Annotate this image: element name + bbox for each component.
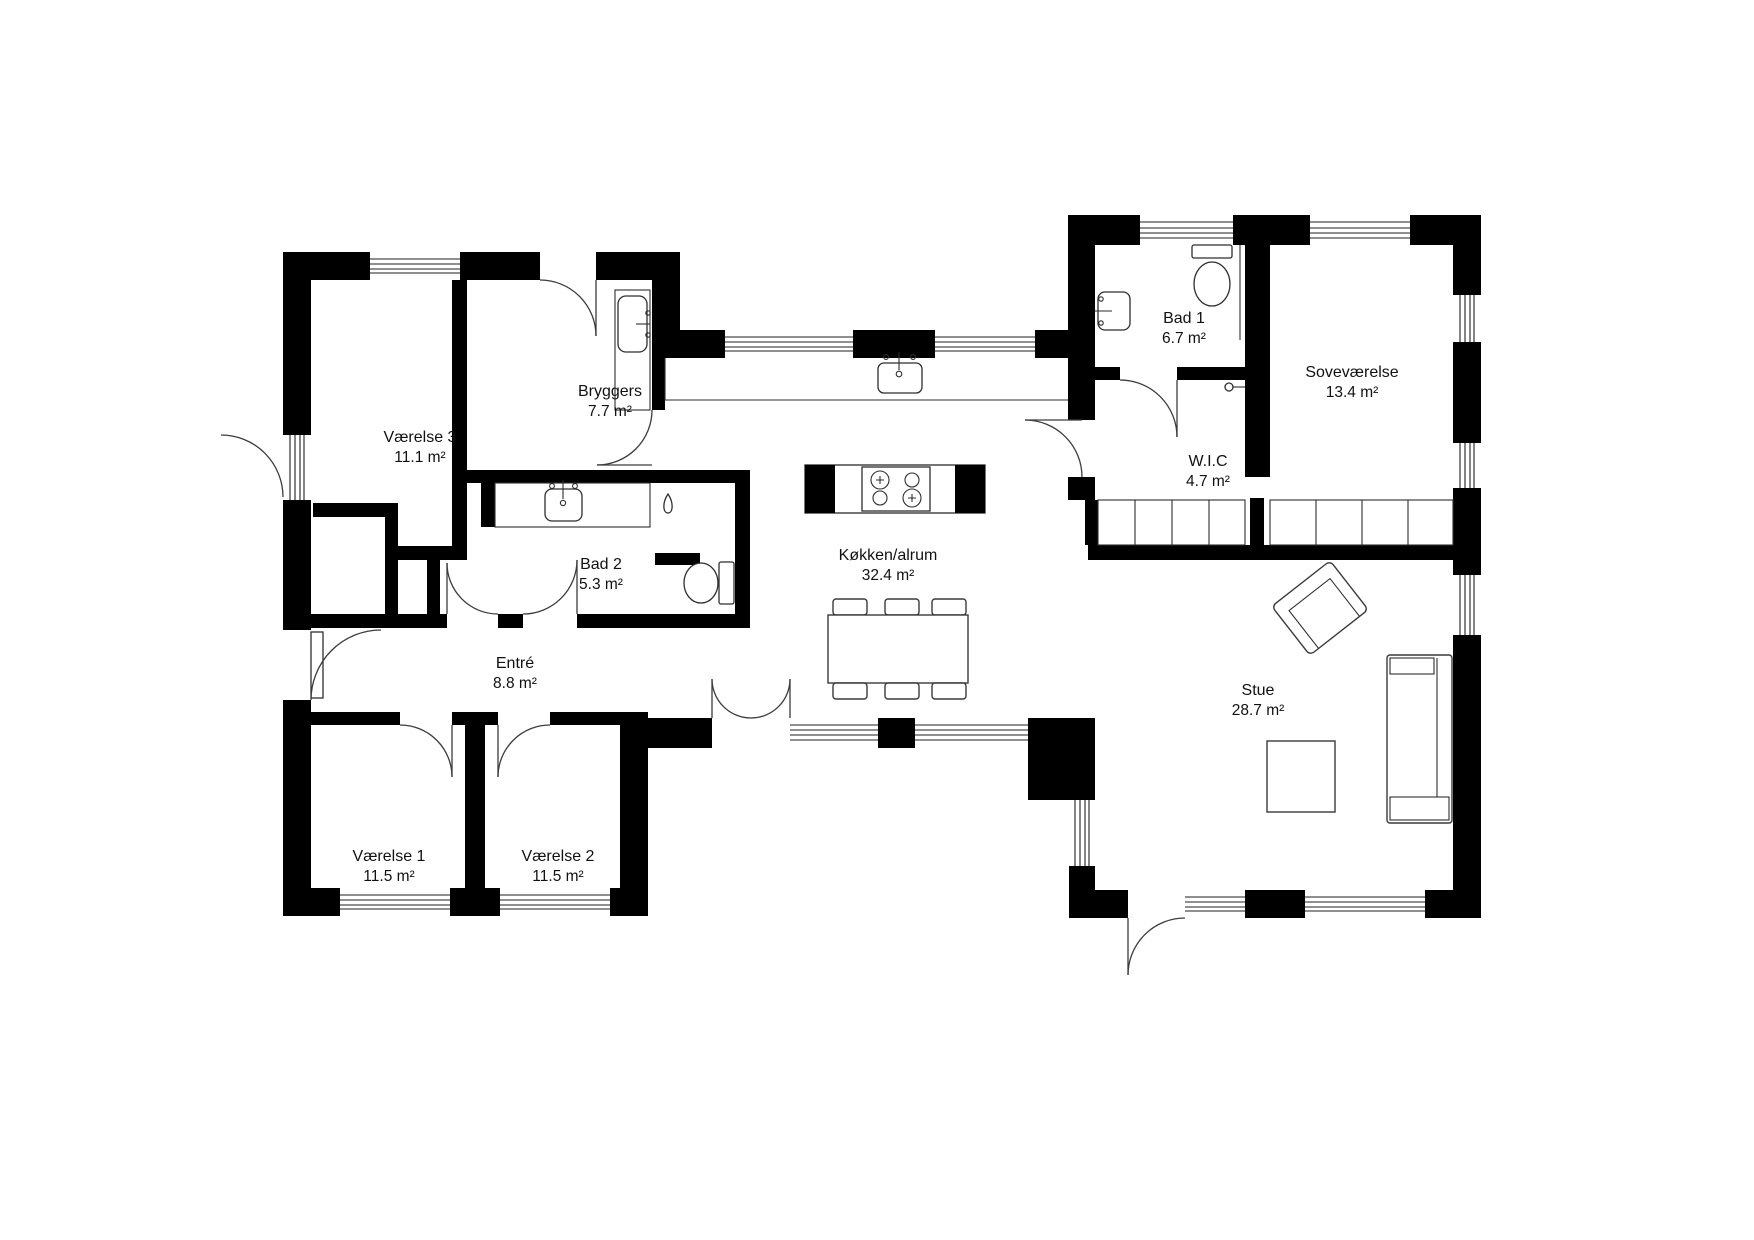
svg-text:Stue: Stue [1242,682,1275,699]
bad1-sink-icon [1095,292,1130,330]
window-vaerelse3-top [370,259,460,273]
kitchen-sink-icon [878,352,922,393]
floor-plan-page: Værelse 3 11.1 m² Bryggers 7.7 m² Bad 2 … [0,0,1754,1240]
window-sove-top-2 [1310,222,1410,238]
room-label-bad2: Bad 2 5.3 m² [579,556,623,593]
window-kitchen-bottom-2 [915,725,1028,740]
svg-text:32.4 m²: 32.4 m² [862,567,915,584]
room-label-vaerelse2: Værelse 2 11.5 m² [522,848,595,885]
svg-text:Bad 1: Bad 1 [1163,310,1205,327]
door-vaerelse3 [447,563,498,614]
dining-chair [885,683,919,699]
door-front-entrance [311,630,381,700]
window-vaerelse2-bottom [500,895,610,909]
room-label-stue: Stue 28.7 m² [1232,682,1285,719]
room-label-bryggers: Bryggers 7.7 m² [578,383,642,420]
window-stue-left-low [1075,800,1089,866]
svg-text:Værelse 2: Værelse 2 [522,848,595,865]
door-vaerelse1 [400,725,452,777]
svg-text:Soveværelse: Soveværelse [1305,364,1398,381]
window-stue-bottom-2 [1305,897,1425,911]
svg-text:4.7 m²: 4.7 m² [1186,473,1230,490]
svg-text:13.4 m²: 13.4 m² [1326,384,1379,401]
window-casement-arc [221,435,283,497]
dining-table [828,615,968,683]
svg-text:28.7 m²: 28.7 m² [1232,702,1285,719]
door-stue-terrace [1128,918,1185,975]
window-sove-right-2 [1460,443,1474,488]
room-label-wic: W.I.C 4.7 m² [1186,453,1230,490]
svg-text:11.1 m²: 11.1 m² [394,449,445,466]
svg-text:Værelse 1: Værelse 1 [353,848,426,865]
svg-text:Bryggers: Bryggers [578,383,642,400]
window-sove-top-1 [1140,222,1233,238]
svg-text:Værelse 3: Værelse 3 [384,429,457,446]
dining-chair [932,599,966,615]
dining-chair [833,599,867,615]
window-kitchen-bottom-1 [790,725,878,740]
svg-text:Entré: Entré [496,655,534,672]
door-vaerelse2 [498,725,550,777]
room-label-sovevaerelse: Soveværelse 13.4 m² [1305,364,1398,401]
bad1-toilet-icon [1192,245,1232,306]
svg-text:Køkken/alrum: Køkken/alrum [839,547,938,564]
wic-wardrobe [1098,500,1245,545]
svg-text:11.5 m²: 11.5 m² [532,868,583,885]
window-vaerelse1-bottom [340,895,450,909]
window-kitchen-top-1 [725,337,853,351]
window-kitchen-top-2 [935,337,1035,351]
kitchen-counter [665,358,1068,400]
coffee-table [1267,741,1335,812]
window-stue-bottom-1 [1185,897,1245,911]
dining-chair [833,683,867,699]
sove-wardrobe [1270,500,1453,545]
washing-machine-icon [618,296,650,352]
svg-text:8.8 m²: 8.8 m² [493,675,537,692]
window-stue-right [1460,575,1474,635]
stue-furniture [1267,561,1452,823]
room-label-vaerelse3: Værelse 3 11.1 m² [384,429,457,466]
window-sove-right-1 [1460,295,1474,342]
dining-set [828,599,968,699]
bad2-toilet-icon [684,562,734,604]
armchair [1272,561,1368,655]
door-wic [1025,420,1082,477]
room-label-koekken: Køkken/alrum 32.4 m² [839,547,938,584]
floor-plan-drawing: Værelse 3 11.1 m² Bryggers 7.7 m² Bad 2 … [0,0,1754,1240]
svg-text:7.7 m²: 7.7 m² [588,403,632,420]
stove-icon [862,467,930,511]
room-labels: Værelse 3 11.1 m² Bryggers 7.7 m² Bad 2 … [353,310,1399,885]
shower-drain-icon [664,494,672,513]
svg-text:5.3 m²: 5.3 m² [579,576,623,593]
door-kitchen-terrace-double [712,679,790,718]
dining-chair [932,683,966,699]
dining-chair [885,599,919,615]
door-bryggers-entry [540,280,596,336]
door-bad1 [1120,380,1177,437]
svg-text:6.7 m²: 6.7 m² [1162,330,1206,347]
room-label-vaerelse1: Værelse 1 11.5 m² [353,848,426,885]
svg-text:W.I.C: W.I.C [1188,453,1227,470]
window-vaerelse3-left [290,435,304,500]
kitchen-island [805,465,985,513]
room-label-bad1: Bad 1 6.7 m² [1162,310,1206,347]
room-label-entre: Entré 8.8 m² [493,655,537,692]
sofa [1387,655,1452,823]
svg-text:Bad 2: Bad 2 [580,556,622,573]
svg-text:11.5 m²: 11.5 m² [363,868,414,885]
door-bad2 [523,560,577,614]
bad2-sink-icon [545,480,582,521]
shower-mixer-icon [1225,383,1245,391]
